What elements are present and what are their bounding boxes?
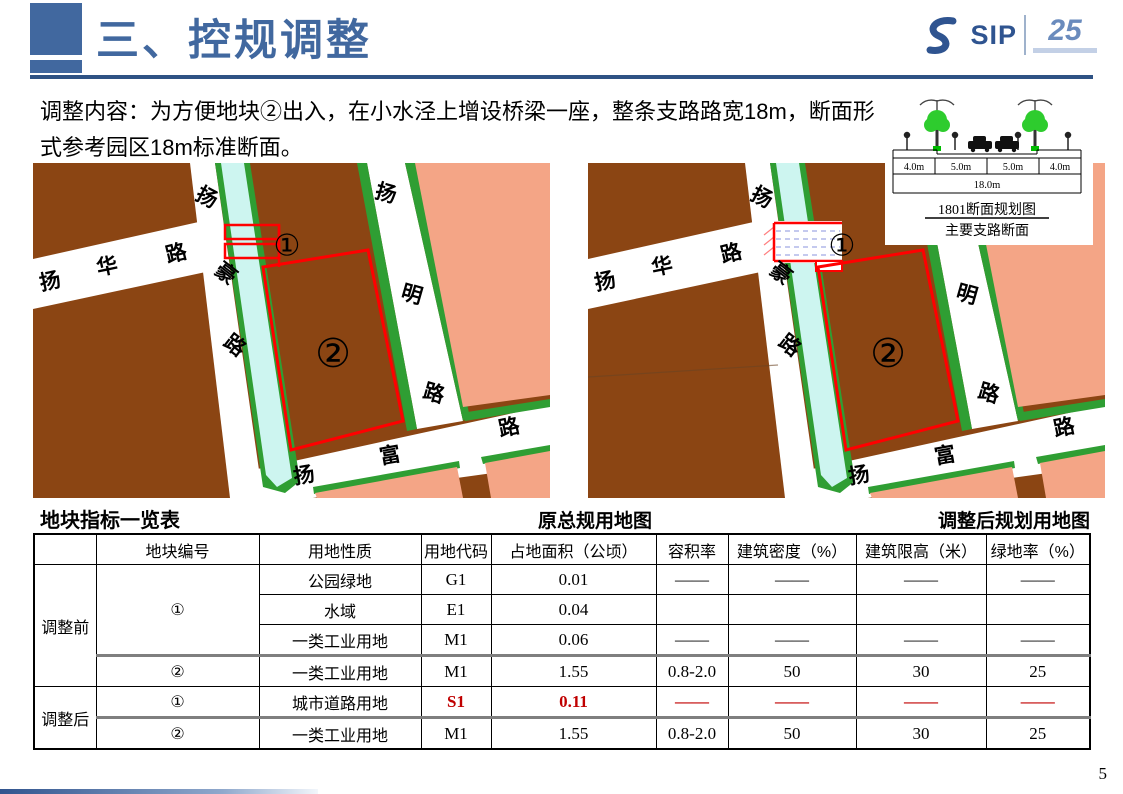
road-label-char: 富 (933, 442, 958, 469)
dim-label: 5.0m (951, 162, 972, 173)
page-title: 三、控规调整 (96, 6, 372, 68)
indicator-table-head-row: 地块编号用地性质用地代码占地面积（公顷）容积率建筑密度（%）建筑限高（米）绿地率… (34, 534, 1090, 565)
column-header: 建筑密度（%） (728, 534, 856, 565)
table-cell: 水域 (259, 595, 421, 625)
table-cell: 0.01 (491, 565, 656, 595)
table-cell: 0.8-2.0 (656, 718, 728, 750)
table-cell: 25 (986, 718, 1090, 750)
table-cell: M1 (421, 656, 491, 687)
adjustment-description: 调整内容：为方便地块②出入，在小水泾上增设桥梁一座，整条支路路宽18m，断面形式… (40, 94, 885, 166)
table-title: 地块指标一览表 (40, 504, 180, 533)
table-cell: 一类工业用地 (259, 625, 421, 656)
sip-logo-text: SIP (970, 20, 1017, 51)
logo-divider (1024, 15, 1026, 55)
table-cell: G1 (421, 565, 491, 595)
column-header: 容积率 (656, 534, 728, 565)
table-cell: 0.06 (491, 625, 656, 656)
column-header: 用地代码 (421, 534, 491, 565)
right-map-caption: 调整后规划用地图 (845, 506, 1090, 533)
parcel-number-label: ② (870, 332, 906, 376)
cross-section-subtitle: 主要支路断面 (945, 223, 1029, 239)
table-cell: 30 (856, 718, 986, 750)
anniversary-tagline (1033, 48, 1097, 53)
table-cell: —— (856, 625, 986, 656)
table-cell: M1 (421, 625, 491, 656)
plot-number-cell: ② (96, 656, 259, 687)
sip-logo-icon (921, 14, 963, 56)
table-cell: —— (656, 625, 728, 656)
column-header (34, 534, 96, 565)
column-header: 地块编号 (96, 534, 259, 565)
table-row: 调整前①公园绿地G10.01———————— (34, 565, 1090, 595)
plot-number-cell: ① (96, 565, 259, 656)
anniversary-logo: 25 (1033, 17, 1097, 53)
plot-number-cell: ① (96, 687, 259, 718)
table-cell: —— (986, 565, 1090, 595)
table-cell: —— (986, 687, 1090, 718)
table-cell: —— (986, 625, 1090, 656)
section-label: 调整前 (34, 565, 96, 687)
bottom-decor-bar (0, 789, 318, 794)
table-cell: E1 (421, 595, 491, 625)
slide: 三、控规调整 SIP 25 调整内容：为方便地块②出入，在小水泾上增设桥梁一座，… (0, 0, 1123, 794)
table-cell (856, 595, 986, 625)
column-header: 绿地率（%） (986, 534, 1090, 565)
parcel-number-label: ① (274, 230, 301, 263)
table-cell: 50 (728, 656, 856, 687)
table-row: 调整后①城市道路用地S10.11———————— (34, 687, 1090, 718)
table-cell: —— (656, 565, 728, 595)
table-cell (656, 595, 728, 625)
column-header: 用地性质 (259, 534, 421, 565)
table-cell (986, 595, 1090, 625)
table-cell: 一类工业用地 (259, 718, 421, 750)
parcel-number-label: ① (829, 230, 856, 263)
table-cell: 0.11 (491, 687, 656, 718)
table-cell: —— (856, 687, 986, 718)
page-number: 5 (1099, 764, 1108, 784)
title-underline (30, 75, 1093, 79)
column-header: 建筑限高（米） (856, 534, 986, 565)
table-cell: —— (728, 687, 856, 718)
table-cell: —— (656, 687, 728, 718)
cross-section-title: 1801断面规划图 (938, 202, 1036, 218)
table-cell: 30 (856, 656, 986, 687)
road-label-char: 扬 (847, 463, 872, 489)
column-header: 占地面积（公顷） (491, 534, 656, 565)
sip-logo: SIP 25 (921, 14, 1097, 56)
dim-label: 4.0m (1050, 162, 1071, 173)
indicator-table: 地块编号用地性质用地代码占地面积（公顷）容积率建筑密度（%）建筑限高（米）绿地率… (33, 533, 1091, 750)
table-cell: M1 (421, 718, 491, 750)
total-dim-label: 18.0m (974, 180, 1001, 191)
map-original: 扬华路扬豪路扬明路扬富路 ①② (33, 163, 550, 498)
table-cell: 公园绿地 (259, 565, 421, 595)
table-cell: 50 (728, 718, 856, 750)
title-decor-square-small (30, 60, 82, 73)
table-cell: 1.55 (491, 656, 656, 687)
cross-section-panel: 4.0m 5.0m 5.0m 4.0m 18.0m 1801断面规划图 主要支路… (885, 88, 1093, 245)
left-map-caption: 原总规用地图 (455, 506, 735, 533)
table-cell: —— (728, 565, 856, 595)
table-cell: 1.55 (491, 718, 656, 750)
table-cell: 城市道路用地 (259, 687, 421, 718)
table-cell: —— (728, 625, 856, 656)
dim-label: 4.0m (904, 162, 925, 173)
table-cell: 0.04 (491, 595, 656, 625)
table-cell: 0.8-2.0 (656, 656, 728, 687)
dim-label: 5.0m (1003, 162, 1024, 173)
parcel-number-label: ② (315, 332, 351, 376)
indicator-table-wrap: 地块编号用地性质用地代码占地面积（公顷）容积率建筑密度（%）建筑限高（米）绿地率… (33, 533, 1091, 750)
table-cell (728, 595, 856, 625)
plot-number-cell: ② (96, 718, 259, 750)
road-label-char: 扬 (292, 463, 317, 489)
road-label-char: 富 (378, 442, 403, 469)
table-cell: —— (856, 565, 986, 595)
table-cell: 25 (986, 656, 1090, 687)
table-cell: S1 (421, 687, 491, 718)
section-label: 调整后 (34, 687, 96, 750)
table-row: ②一类工业用地M11.550.8-2.0503025 (34, 656, 1090, 687)
indicator-table-body: 调整前①公园绿地G10.01————————水域E10.04一类工业用地M10.… (34, 565, 1090, 750)
title-decor-square-big (30, 3, 82, 55)
anniversary-number: 25 (1048, 17, 1081, 45)
table-cell: 一类工业用地 (259, 656, 421, 687)
table-row: ②一类工业用地M11.550.8-2.0503025 (34, 718, 1090, 750)
